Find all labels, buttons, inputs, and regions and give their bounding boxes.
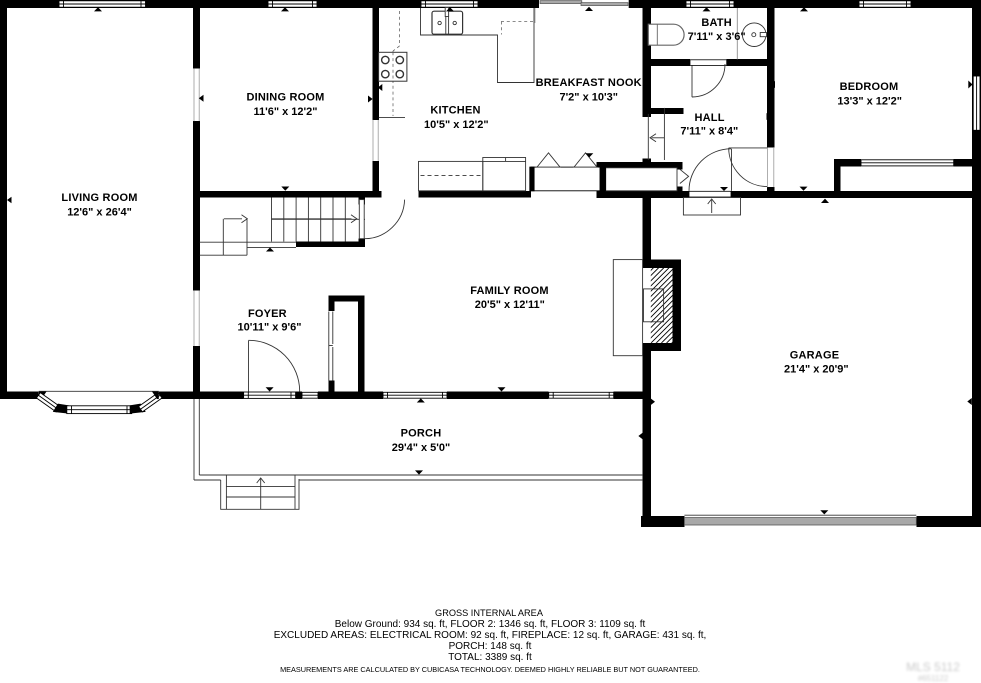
svg-text:21'4" x 20'9": 21'4" x 20'9"	[784, 363, 849, 375]
svg-text:13'3" x 12'2": 13'3" x 12'2"	[837, 95, 902, 107]
svg-text:29'4" x 5'0": 29'4" x 5'0"	[392, 442, 450, 454]
svg-text:PORCH: PORCH	[401, 428, 442, 440]
svg-text:GARAGE: GARAGE	[790, 350, 839, 362]
svg-text:BATH: BATH	[701, 17, 732, 29]
svg-text:EXCLUDED AREAS: ELECTRICAL ROO: EXCLUDED AREAS: ELECTRICAL ROOM: 92 sq. …	[274, 630, 707, 641]
svg-text:MEASUREMENTS ARE CALCULATED BY: MEASUREMENTS ARE CALCULATED BY CUBICASA …	[280, 665, 700, 674]
svg-text:GROSS INTERNAL AREA: GROSS INTERNAL AREA	[435, 608, 544, 618]
svg-text:20'5" x 12'11": 20'5" x 12'11"	[475, 299, 545, 311]
svg-text:TOTAL: 3389 sq. ft: TOTAL: 3389 sq. ft	[448, 652, 532, 663]
svg-text:11'6" x 12'2": 11'6" x 12'2"	[254, 106, 318, 118]
svg-text:HALL: HALL	[695, 112, 725, 124]
svg-text:DINING ROOM: DINING ROOM	[247, 92, 325, 104]
svg-text:7'11" x 8'4": 7'11" x 8'4"	[680, 126, 738, 138]
svg-text:10'5" x 12'2": 10'5" x 12'2"	[424, 119, 489, 131]
svg-text:7'11" x 3'6": 7'11" x 3'6"	[688, 31, 746, 43]
svg-text:Below Ground: 934 sq. ft, FLOO: Below Ground: 934 sq. ft, FLOOR 2: 1346 …	[335, 619, 646, 630]
svg-text:12'6" x 26'4": 12'6" x 26'4"	[67, 206, 132, 218]
svg-text:#651122: #651122	[918, 674, 949, 683]
svg-text:LIVING ROOM: LIVING ROOM	[61, 192, 137, 204]
svg-text:BREAKFAST NOOK: BREAKFAST NOOK	[536, 77, 642, 89]
svg-text:FAMILY ROOM: FAMILY ROOM	[470, 285, 549, 297]
svg-text:KITCHEN: KITCHEN	[430, 105, 480, 117]
svg-text:10'11" x 9'6": 10'11" x 9'6"	[238, 322, 302, 334]
svg-text:BEDROOM: BEDROOM	[840, 81, 899, 93]
svg-text:PORCH: 148 sq. ft: PORCH: 148 sq. ft	[449, 641, 532, 652]
svg-text:FOYER: FOYER	[248, 308, 287, 320]
svg-text:7'2" x 10'3": 7'2" x 10'3"	[559, 92, 617, 104]
svg-text:MLS 5112: MLS 5112	[906, 660, 960, 674]
